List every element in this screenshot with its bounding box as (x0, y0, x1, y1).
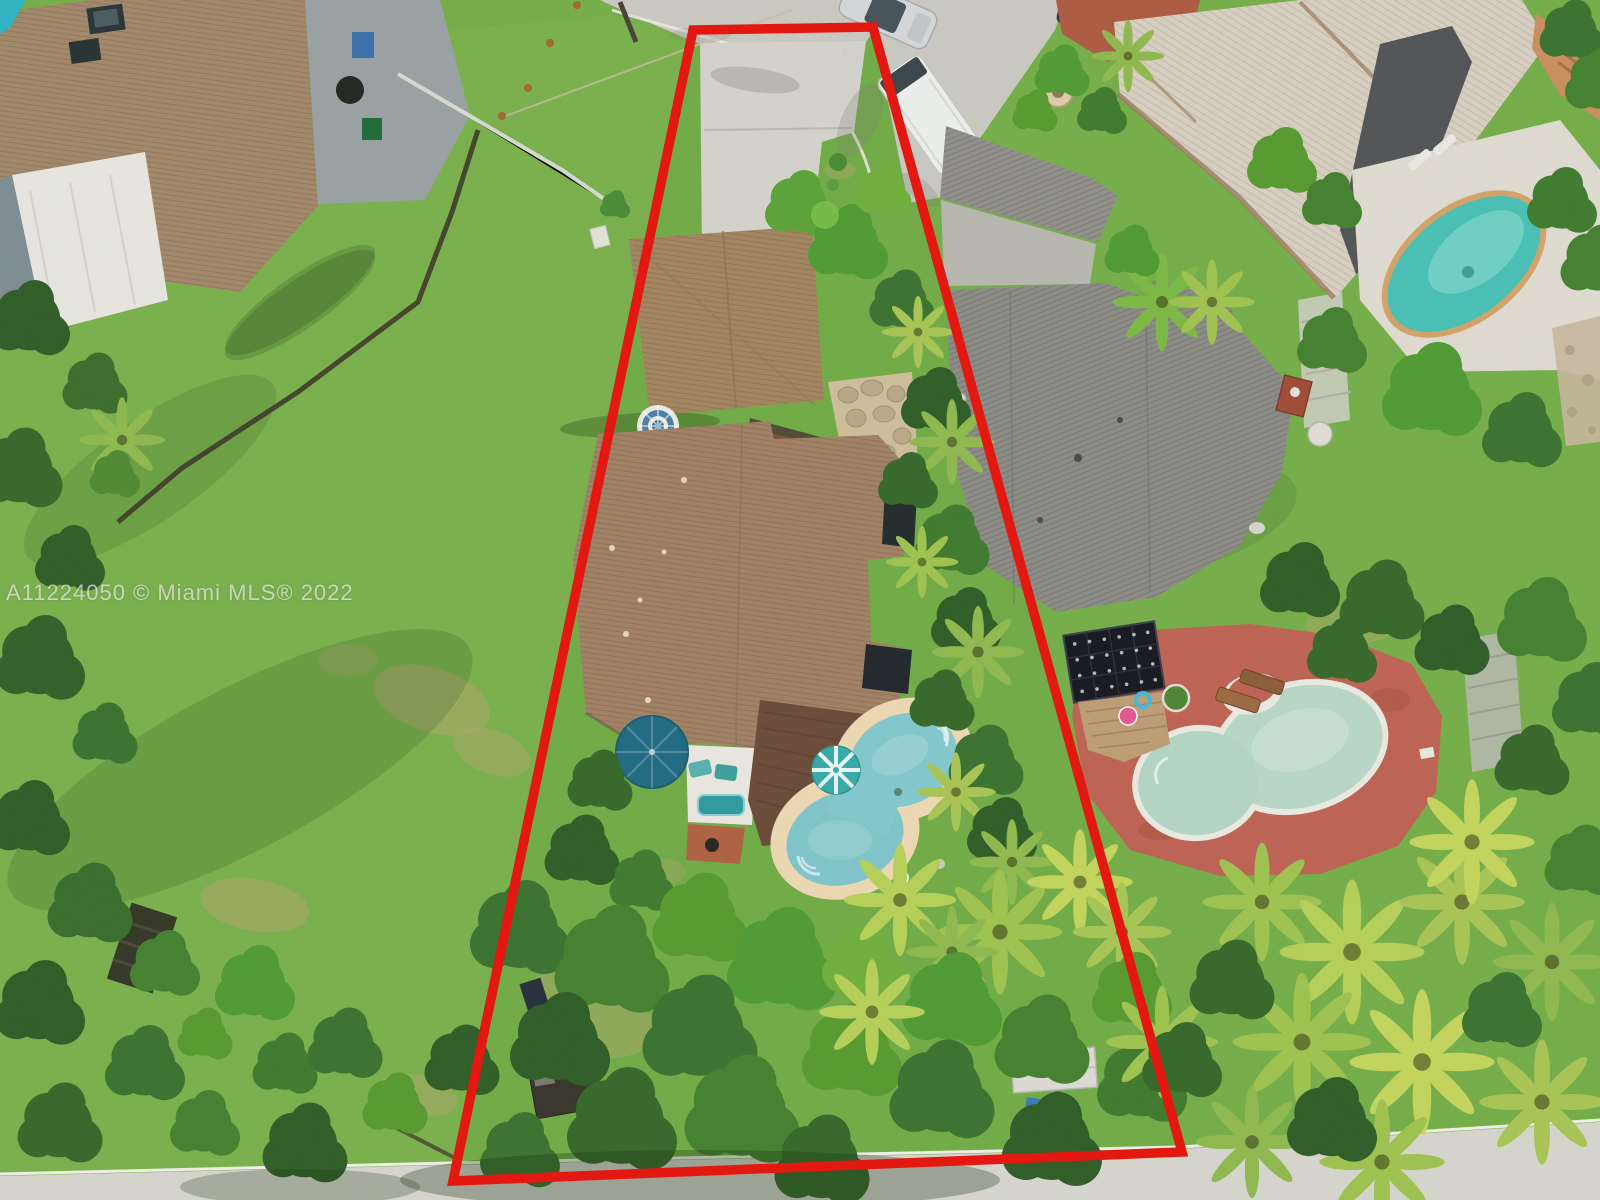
aerial-photo: A11224050 © Miami MLS® 2022 (0, 0, 1600, 1200)
mls-watermark: A11224050 © Miami MLS® 2022 (6, 580, 354, 606)
